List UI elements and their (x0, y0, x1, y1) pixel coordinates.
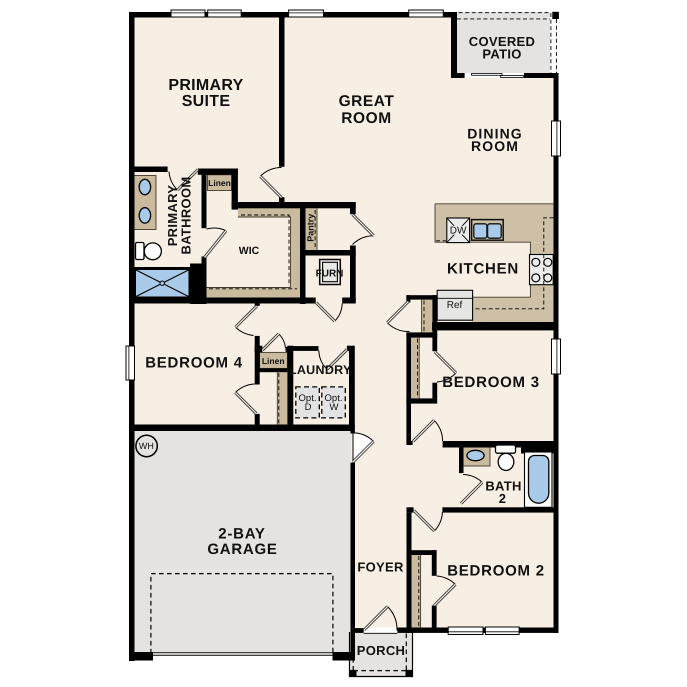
svg-text:PATIO: PATIO (482, 46, 521, 61)
svg-text:GARAGE: GARAGE (207, 541, 277, 558)
svg-text:FURN: FURN (316, 268, 344, 279)
svg-text:ROOM: ROOM (341, 110, 391, 127)
svg-text:WIC: WIC (239, 245, 260, 257)
svg-text:Linen: Linen (262, 356, 285, 366)
svg-text:ROOM: ROOM (471, 138, 519, 154)
svg-text:PRIMARY: PRIMARY (168, 77, 243, 94)
svg-text:DW: DW (450, 225, 467, 236)
svg-text:BEDROOM 4: BEDROOM 4 (145, 354, 243, 371)
svg-text:FOYER: FOYER (357, 560, 404, 575)
svg-text:BATHROOM: BATHROOM (178, 177, 193, 255)
svg-text:Pantry: Pantry (306, 214, 316, 242)
svg-text:GREAT: GREAT (339, 93, 395, 110)
svg-text:Ref: Ref (447, 300, 463, 311)
svg-text:W: W (330, 402, 339, 413)
svg-text:LAUNDRY: LAUNDRY (289, 363, 352, 377)
svg-text:2-BAY: 2-BAY (218, 525, 265, 542)
svg-text:SUITE: SUITE (182, 93, 231, 110)
svg-text:D: D (305, 402, 312, 413)
svg-text:BEDROOM 3: BEDROOM 3 (442, 374, 540, 391)
svg-text:KITCHEN: KITCHEN (447, 260, 519, 277)
svg-text:PORCH: PORCH (357, 643, 405, 658)
svg-text:Linen: Linen (208, 178, 231, 188)
svg-text:2: 2 (499, 491, 507, 506)
svg-text:WH: WH (139, 441, 154, 451)
svg-text:BEDROOM 2: BEDROOM 2 (447, 562, 545, 579)
